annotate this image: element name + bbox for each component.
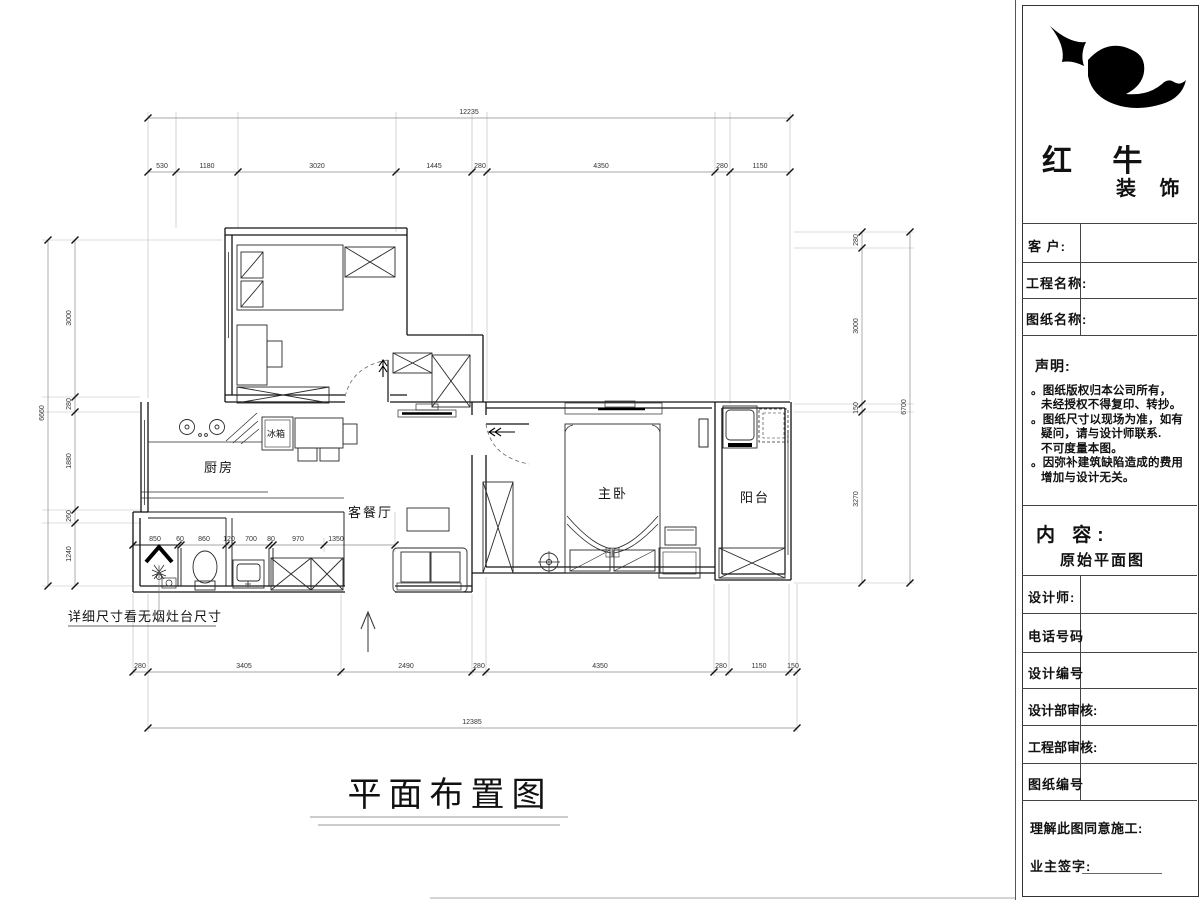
svg-text:6700: 6700 [901,399,908,415]
svg-text:280: 280 [716,163,728,170]
svg-text:860: 860 [198,536,210,543]
content-heading: 内 容: [1036,520,1110,547]
svg-text:2490: 2490 [398,663,414,670]
drawing-sheet: 12235 530 1180 3020 1445 280 4350 280 11… [0,0,1200,900]
room-label-fridge: 冰箱 [267,428,285,439]
svg-text:1150: 1150 [751,663,766,670]
engineering-review-label: 工程部审核: [1028,737,1097,756]
designer-label: 设计师: [1028,587,1075,606]
extension-lines [42,112,914,732]
brand-logo-icon [1030,12,1190,132]
svg-text:150: 150 [787,663,799,670]
phone-label: 电话号码 [1028,626,1084,645]
svg-text:1350: 1350 [328,536,344,543]
svg-text:3000: 3000 [853,318,860,334]
design-no-label: 设计编号 [1028,663,1084,682]
svg-text:280: 280 [66,398,73,410]
dimension-lines [48,118,910,728]
svg-text:80: 80 [267,536,275,543]
statement-heading: 声明: [1035,356,1071,376]
floor-plan-canvas: 12235 530 1180 3020 1445 280 4350 280 11… [0,0,1015,900]
svg-text:1880: 1880 [66,453,73,469]
svg-text:700: 700 [245,536,257,543]
walls [133,228,791,592]
agree-label: 理解此图同意施工: [1030,818,1143,837]
room-label-living: 客餐厅 [348,505,393,520]
signature-line [1082,873,1162,874]
sheet-name-label: 图纸名称: [1026,309,1087,328]
svg-text:6660: 6660 [39,405,46,421]
content-value: 原始平面图 [1060,549,1145,570]
svg-text:970: 970 [292,536,304,543]
svg-text:4350: 4350 [592,663,608,670]
room-label-kitchen: 厨房 [204,460,234,475]
svg-text:3405: 3405 [236,663,252,670]
svg-text:530: 530 [156,163,168,170]
svg-text:280: 280 [474,163,486,170]
stove-note: 详细尺寸看无烟灶台尺寸 [68,609,222,624]
statement-line: 疑问，请与设计师联系. [1041,425,1161,441]
svg-text:260: 260 [66,510,73,522]
svg-text:60: 60 [176,536,184,543]
room-label-master: 主卧 [598,486,628,501]
project-name-label: 工程名称: [1026,273,1087,292]
svg-text:280: 280 [715,663,727,670]
svg-text:1180: 1180 [199,163,214,170]
furniture [141,245,788,611]
svg-text:3000: 3000 [66,310,73,326]
svg-text:12235: 12235 [459,109,479,116]
sheet-separator [1015,0,1016,900]
svg-text:280: 280 [134,663,146,670]
entry-arrow [361,612,375,652]
svg-text:12385: 12385 [462,719,482,726]
svg-text:1150: 1150 [752,163,767,170]
svg-text:3020: 3020 [309,163,325,170]
room-label-balcony: 阳台 [740,490,770,505]
svg-text:280: 280 [473,663,485,670]
statement-line: 增加与设计无关。 [1041,469,1135,485]
dimension-labels: 12235 530 1180 3020 1445 280 4350 280 11… [39,109,908,726]
svg-text:1445: 1445 [426,163,442,170]
svg-text:150: 150 [853,402,860,414]
svg-text:280: 280 [853,234,860,246]
sheet-no-label: 图纸编号 [1028,774,1084,793]
design-review-label: 设计部审核: [1028,700,1097,719]
svg-text:3270: 3270 [853,491,860,507]
statement-line: 未经授权不得复印、转抄。 [1041,396,1181,412]
drawing-title: 平面布置图 [348,776,553,814]
svg-text:850: 850 [149,536,161,543]
svg-text:4350: 4350 [593,163,609,170]
customer-label: 客 户: [1028,236,1066,255]
svg-text:1240: 1240 [66,546,73,562]
dimension-ticks [45,115,914,732]
statement-line: 。因弥补建筑缺陷造成的费用 [1031,454,1183,470]
brand-subname: 装 饰 [1116,172,1189,201]
svg-text:120: 120 [223,536,235,543]
